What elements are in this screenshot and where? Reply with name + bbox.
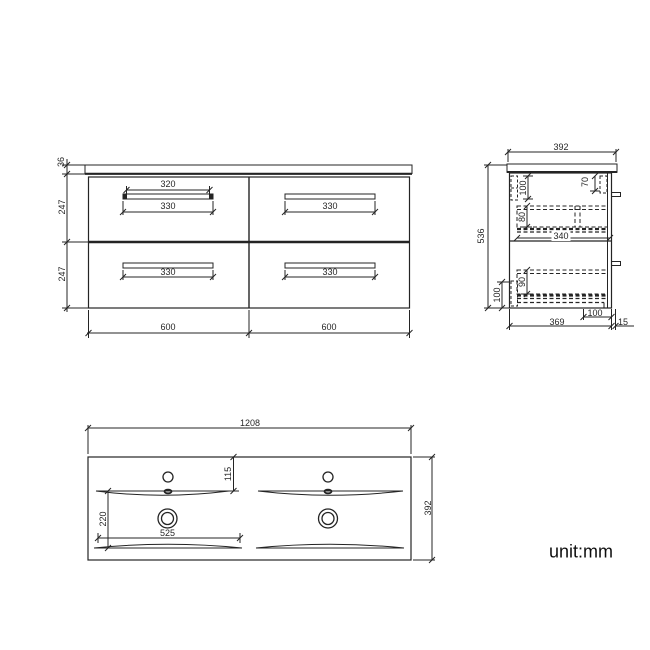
plan-dim-label-525: 525 bbox=[160, 528, 175, 538]
side-dim-label-536: 536 bbox=[476, 228, 486, 243]
side-drawer-upper bbox=[517, 206, 608, 232]
side-countertop bbox=[507, 164, 617, 172]
drawer-handle-top-left bbox=[123, 194, 213, 199]
plan-dim-label-392: 392 bbox=[423, 500, 433, 515]
side-dim-label-100-bottom-right: 100 bbox=[587, 308, 602, 318]
vanity-dimension-drawing: 36 247 247 320 330 330 330 330 600 600 3… bbox=[0, 0, 650, 650]
side-dim-label-15: 15 bbox=[618, 317, 628, 327]
front-dim-label-330-tr: 330 bbox=[322, 201, 337, 211]
front-dim-label-330-bl: 330 bbox=[160, 267, 175, 277]
drain-left bbox=[158, 509, 177, 528]
front-dim-600 bbox=[86, 310, 413, 338]
side-dim-label-80: 80 bbox=[517, 211, 527, 221]
drain-right bbox=[319, 509, 338, 528]
side-drawer-lower bbox=[517, 270, 608, 303]
front-dim-label-247-top: 247 bbox=[57, 199, 67, 214]
side-dim-label-100-bottom-left: 100 bbox=[492, 287, 502, 302]
tap-hole-left bbox=[163, 472, 173, 482]
plan-dim-label-115: 115 bbox=[223, 467, 233, 481]
side-dim-label-369: 369 bbox=[549, 317, 564, 327]
plan-dim-label-1208: 1208 bbox=[240, 418, 260, 428]
front-dim-label-36: 36 bbox=[56, 157, 66, 167]
drawer-handle-top-right bbox=[285, 194, 375, 199]
front-countertop bbox=[85, 165, 412, 174]
plan-dim-label-220: 220 bbox=[98, 511, 108, 526]
side-dim-bottom bbox=[507, 309, 635, 330]
tap-hole-right bbox=[323, 472, 333, 482]
basin-curves bbox=[94, 491, 404, 548]
front-dim-label-330-br: 330 bbox=[322, 267, 337, 277]
side-dim-label-90: 90 bbox=[517, 277, 527, 287]
side-dim-label-340: 340 bbox=[551, 231, 570, 241]
front-dim-label-600-left: 600 bbox=[160, 322, 175, 332]
front-view-lines bbox=[62, 159, 413, 338]
front-dim-label-330-tl: 330 bbox=[160, 201, 175, 211]
side-dim-label-70: 70 bbox=[580, 176, 590, 186]
plan-view-lines bbox=[85, 425, 435, 563]
front-cabinet-outline bbox=[89, 177, 410, 308]
plan-dim-1208 bbox=[85, 425, 414, 454]
front-dim-left-chain bbox=[62, 159, 88, 312]
side-dim-70 bbox=[590, 173, 600, 194]
front-dim-label-320: 320 bbox=[160, 179, 175, 189]
side-dim-label-100-top: 100 bbox=[518, 180, 528, 195]
unit-note: unit:mm bbox=[549, 542, 613, 563]
side-handle-upper bbox=[612, 193, 621, 197]
side-handle-lower bbox=[612, 262, 621, 266]
front-dim-label-247-bottom: 247 bbox=[57, 266, 67, 281]
front-dim-label-600-right: 600 bbox=[321, 322, 336, 332]
side-dim-label-392: 392 bbox=[553, 142, 568, 152]
